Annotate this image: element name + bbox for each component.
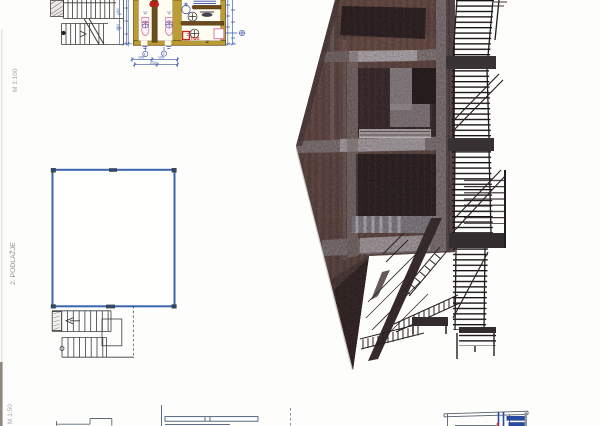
svg-text:105: 105: [138, 56, 144, 60]
svg-text:TUŠ: TUŠ: [191, 34, 200, 41]
svg-text:1: 1: [144, 52, 146, 56]
svg-text:180: 180: [115, 24, 120, 31]
svg-text:90: 90: [115, 8, 120, 13]
svg-text:210: 210: [150, 61, 156, 65]
svg-text:105: 105: [158, 56, 164, 60]
svg-text:2. PODLAŽJE: 2. PODLAŽJE: [8, 242, 17, 285]
svg-text:M 1:100: M 1:100: [12, 68, 19, 92]
svg-text:M 1:50: M 1:50: [7, 404, 14, 424]
